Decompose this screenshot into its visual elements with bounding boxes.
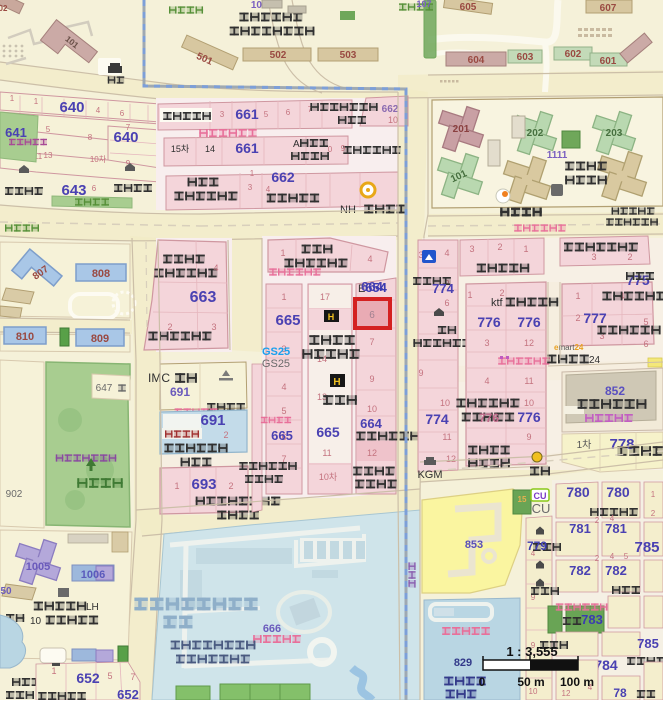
- svg-text:4: 4: [484, 376, 489, 386]
- svg-text:2: 2: [223, 430, 228, 440]
- svg-text:15: 15: [518, 495, 527, 504]
- svg-text:100 m: 100 m: [560, 675, 594, 689]
- svg-text:780: 780: [566, 484, 590, 500]
- svg-text:661: 661: [235, 140, 259, 156]
- svg-text:1: 1: [467, 290, 472, 300]
- svg-text:5: 5: [281, 406, 286, 416]
- svg-text:852: 852: [605, 384, 625, 398]
- svg-text:4: 4: [96, 106, 101, 115]
- svg-text:7: 7: [126, 123, 131, 132]
- svg-text:2: 2: [497, 242, 502, 252]
- svg-text:782: 782: [605, 563, 627, 578]
- svg-text:1: 1: [651, 490, 656, 499]
- svg-text:2: 2: [595, 554, 600, 563]
- svg-text:781: 781: [605, 521, 627, 536]
- svg-text:GS25: GS25: [262, 346, 290, 358]
- svg-text:GS25: GS25: [262, 358, 290, 370]
- svg-text:5: 5: [46, 125, 51, 134]
- svg-text:1차: 1차: [577, 439, 592, 451]
- svg-text:1: 1: [281, 292, 286, 302]
- svg-text:IMC: IMC: [148, 371, 170, 385]
- svg-text:10차: 10차: [90, 155, 107, 164]
- svg-text:emart24: emart24: [554, 343, 584, 352]
- svg-text:665: 665: [275, 312, 300, 329]
- svg-text:604: 604: [468, 55, 485, 66]
- svg-text:CU: CU: [534, 491, 547, 501]
- svg-text:782: 782: [569, 563, 591, 578]
- svg-text:5: 5: [624, 552, 629, 561]
- svg-text:0: 0: [328, 145, 333, 154]
- svg-text:662: 662: [382, 104, 399, 115]
- svg-text:808: 808: [92, 268, 110, 280]
- svg-text:4: 4: [281, 382, 286, 392]
- svg-text:10: 10: [388, 115, 398, 125]
- svg-text:H: H: [328, 312, 335, 322]
- svg-text:1: 1: [174, 481, 179, 491]
- svg-text:780: 780: [606, 484, 630, 500]
- svg-text:1: 1: [575, 291, 580, 301]
- svg-text:661: 661: [235, 106, 259, 122]
- svg-text:6: 6: [92, 184, 97, 193]
- svg-text:203: 203: [606, 128, 623, 139]
- svg-text:779: 779: [527, 539, 547, 553]
- svg-text:1 : 3,555: 1 : 3,555: [506, 644, 557, 659]
- svg-text:776: 776: [479, 411, 499, 425]
- svg-text:776: 776: [517, 409, 541, 425]
- svg-text:14: 14: [205, 144, 215, 154]
- svg-text:12: 12: [562, 689, 571, 698]
- svg-text:6: 6: [643, 339, 648, 349]
- svg-text:12: 12: [524, 338, 534, 348]
- svg-text:652: 652: [76, 670, 100, 686]
- svg-text:785: 785: [637, 636, 659, 651]
- svg-text:7: 7: [369, 337, 374, 347]
- svg-text:601: 601: [600, 56, 617, 67]
- svg-text:785: 785: [634, 539, 659, 556]
- svg-text:78: 78: [613, 686, 627, 700]
- svg-text:1006: 1006: [81, 569, 105, 581]
- svg-text:783: 783: [581, 612, 603, 627]
- svg-text:662: 662: [271, 169, 295, 185]
- svg-text:665: 665: [316, 424, 340, 440]
- svg-text:13: 13: [44, 151, 53, 160]
- svg-text:4: 4: [444, 248, 449, 258]
- svg-text:02: 02: [0, 4, 8, 13]
- svg-text:4: 4: [367, 254, 372, 264]
- svg-text:693: 693: [191, 476, 216, 493]
- svg-text:6: 6: [286, 108, 291, 117]
- svg-text:652: 652: [117, 687, 139, 700]
- svg-text:776: 776: [517, 314, 541, 330]
- svg-text:664: 664: [360, 416, 382, 431]
- svg-text:2: 2: [575, 313, 580, 323]
- svg-text:810: 810: [16, 331, 34, 343]
- svg-text:1: 1: [34, 97, 39, 106]
- svg-text:50 m: 50 m: [517, 675, 544, 689]
- svg-text:1: 1: [523, 244, 528, 254]
- svg-text:17: 17: [320, 292, 330, 302]
- svg-text:12: 12: [446, 454, 456, 464]
- svg-text:ktf: ktf: [491, 297, 504, 309]
- svg-text:2: 2: [228, 481, 233, 491]
- svg-text:605: 605: [460, 2, 477, 13]
- svg-text:11: 11: [322, 448, 331, 458]
- svg-text:9: 9: [369, 374, 374, 384]
- svg-text:691: 691: [170, 385, 190, 399]
- svg-text:9: 9: [526, 432, 531, 442]
- svg-text:8: 8: [88, 133, 93, 142]
- svg-text:7: 7: [130, 672, 135, 682]
- svg-text:6: 6: [444, 298, 449, 308]
- svg-text:3: 3: [248, 183, 253, 192]
- svg-text:641: 641: [5, 125, 27, 140]
- svg-text:3: 3: [220, 110, 225, 119]
- svg-text:853: 853: [465, 539, 483, 551]
- svg-text:3: 3: [484, 338, 489, 348]
- svg-text:107: 107: [416, 0, 431, 9]
- svg-text:503: 503: [340, 50, 357, 61]
- svg-text:9: 9: [341, 144, 346, 153]
- svg-text:4: 4: [266, 185, 271, 194]
- svg-text:829: 829: [454, 657, 472, 669]
- svg-text:2: 2: [651, 509, 656, 518]
- svg-text:809: 809: [91, 333, 109, 345]
- svg-text:640: 640: [59, 99, 84, 116]
- svg-text:10: 10: [524, 398, 534, 408]
- svg-text:NH: NH: [340, 204, 356, 216]
- svg-text:10: 10: [367, 404, 377, 414]
- svg-text:774: 774: [425, 411, 449, 427]
- svg-text:CU: CU: [532, 501, 551, 516]
- svg-text:A: A: [293, 139, 300, 150]
- svg-text:3: 3: [591, 252, 596, 262]
- svg-text:11: 11: [524, 376, 533, 386]
- svg-text:607: 607: [600, 3, 617, 14]
- svg-text:665: 665: [271, 428, 293, 443]
- svg-text:11: 11: [442, 432, 451, 442]
- svg-text:10: 10: [440, 398, 450, 408]
- svg-text:1: 1: [51, 666, 56, 676]
- svg-text:781: 781: [569, 521, 591, 536]
- svg-text:602: 602: [565, 49, 582, 60]
- svg-text:201: 201: [453, 124, 470, 135]
- svg-text:3: 3: [211, 322, 216, 332]
- svg-text:5: 5: [107, 671, 112, 681]
- svg-text:6: 6: [120, 109, 125, 118]
- svg-text:0: 0: [479, 675, 486, 689]
- svg-text:691: 691: [200, 412, 225, 429]
- svg-text:3: 3: [469, 244, 474, 254]
- svg-text:9: 9: [418, 368, 423, 378]
- svg-text:4: 4: [213, 263, 218, 273]
- svg-text:774: 774: [432, 281, 454, 296]
- svg-text:KGM: KGM: [417, 469, 442, 481]
- svg-text:902: 902: [6, 489, 23, 500]
- svg-text:2: 2: [167, 322, 172, 332]
- svg-text:10: 10: [30, 616, 42, 627]
- svg-text:666: 666: [263, 623, 281, 635]
- svg-text:1111: 1111: [547, 150, 568, 161]
- svg-text:5: 5: [264, 110, 269, 119]
- svg-text:1005: 1005: [26, 561, 50, 573]
- svg-text:654: 654: [365, 280, 387, 295]
- svg-text:5: 5: [643, 317, 648, 327]
- svg-text:6: 6: [369, 310, 375, 321]
- svg-text:15차: 15차: [171, 143, 190, 154]
- svg-text:647: 647: [96, 383, 113, 394]
- svg-text:663: 663: [190, 289, 217, 306]
- svg-text:776: 776: [477, 314, 501, 330]
- svg-text:H: H: [333, 377, 340, 388]
- svg-text:2: 2: [627, 252, 632, 262]
- svg-text:50: 50: [0, 586, 12, 597]
- svg-text:10차: 10차: [319, 471, 338, 482]
- svg-text:202: 202: [527, 128, 544, 139]
- svg-text:777: 777: [583, 310, 607, 326]
- svg-text:1: 1: [10, 94, 15, 103]
- svg-text:1: 1: [280, 248, 285, 258]
- svg-text:1: 1: [250, 169, 255, 178]
- svg-text:502: 502: [270, 50, 287, 61]
- svg-text:4: 4: [610, 552, 615, 561]
- svg-text:LH: LH: [86, 602, 99, 613]
- svg-text:603: 603: [517, 52, 534, 63]
- svg-text:2: 2: [595, 516, 600, 525]
- svg-text:12: 12: [367, 448, 377, 458]
